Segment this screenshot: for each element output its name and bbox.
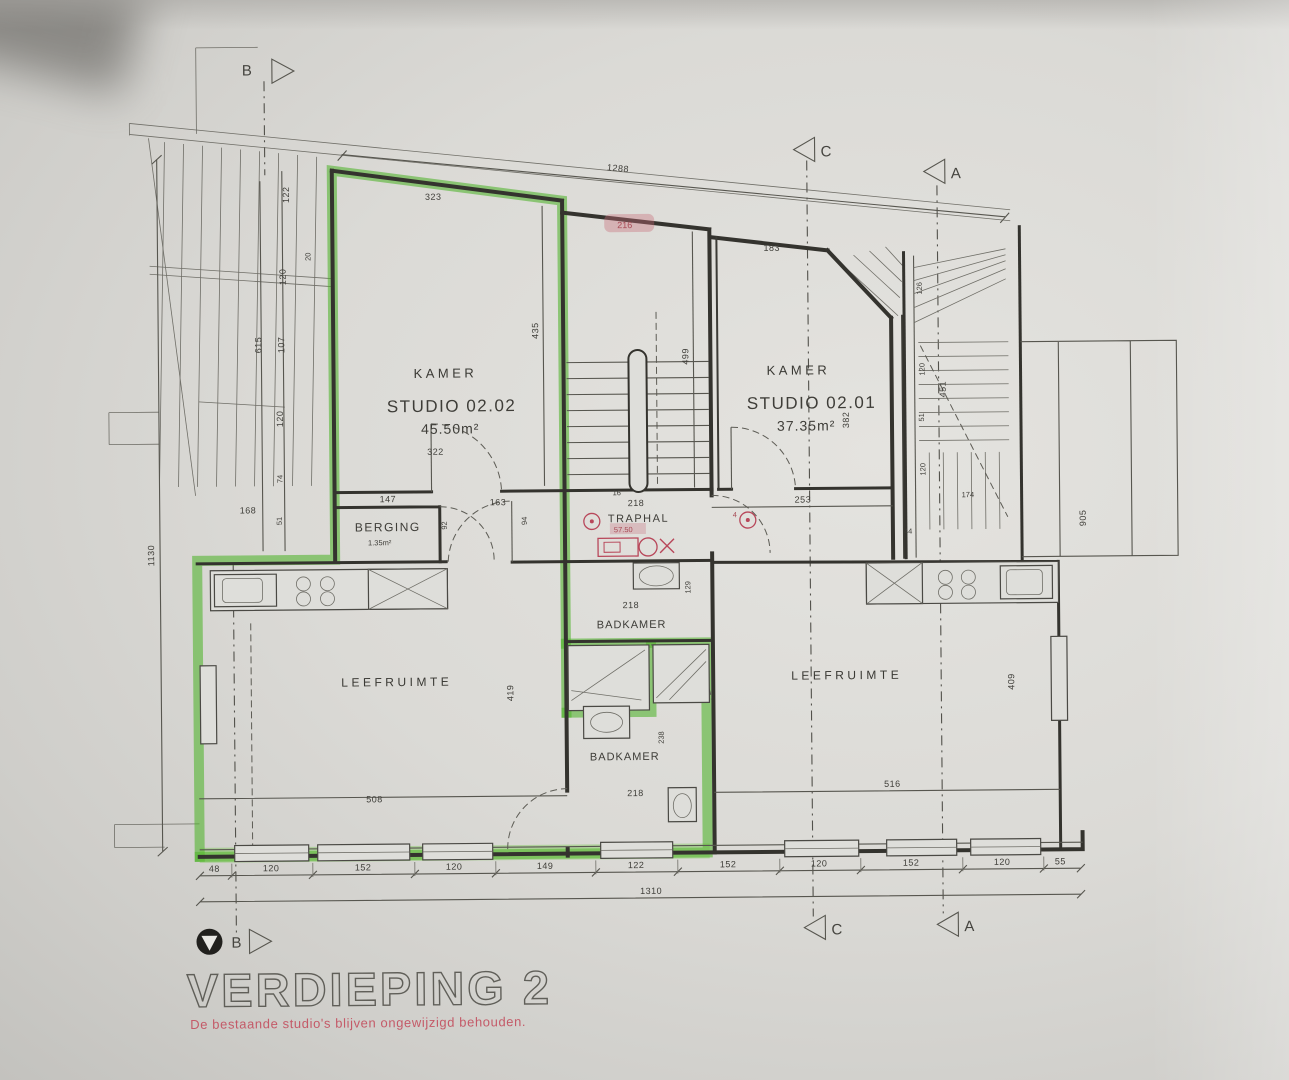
dim-k2-top: 323 bbox=[425, 192, 442, 202]
room-area-0201: 37.35m² bbox=[777, 417, 835, 434]
dim-rs-120b: 120 bbox=[918, 463, 927, 476]
red-annotations: 216 57.50 4 bbox=[581, 213, 756, 556]
kitchen-right bbox=[866, 561, 1058, 604]
dim-rs-174: 174 bbox=[962, 490, 975, 499]
dim-k2-bottom: 322 bbox=[427, 447, 444, 457]
dim-berging-right: 92 bbox=[440, 521, 449, 529]
dim-left-615: 615 bbox=[253, 337, 263, 354]
room-studio-0201: STUDIO 02.01 bbox=[747, 393, 877, 413]
dim-hall-94: 94 bbox=[520, 517, 529, 525]
roof-hatch-right bbox=[837, 247, 903, 317]
dim-bottom-5: 122 bbox=[628, 860, 645, 870]
central-staircase bbox=[566, 349, 709, 492]
marker-c-bottom: C bbox=[831, 921, 843, 938]
dim-bk2-218: 218 bbox=[627, 788, 644, 798]
dim-bottom-8: 152 bbox=[903, 858, 920, 868]
dim-left-1130: 1130 bbox=[146, 545, 156, 566]
dim-bottom-7: 120 bbox=[811, 858, 828, 868]
dim-bottom-6: 152 bbox=[720, 859, 737, 869]
marker-a-bottom: A bbox=[964, 918, 975, 935]
dim-berging-top: 147 bbox=[380, 494, 397, 504]
dim-rs-905: 905 bbox=[1078, 510, 1088, 527]
dim-lrr-516: 516 bbox=[884, 779, 901, 789]
room-leefruimte-left: LEEFRUIMTE bbox=[341, 675, 452, 690]
dim-k1-top: 183 bbox=[763, 243, 780, 253]
dim-k2-right: 435 bbox=[530, 322, 540, 339]
dim-stair-218: 218 bbox=[628, 498, 645, 508]
dim-k1-right: 382 bbox=[841, 412, 851, 429]
marker-c-top: C bbox=[821, 143, 833, 160]
dim-left-122: 122 bbox=[281, 187, 291, 204]
dim-left-120b: 120 bbox=[275, 411, 285, 428]
room-berging: BERGING bbox=[355, 520, 421, 535]
right-staircase bbox=[913, 249, 1009, 530]
dim-bottom-9: 120 bbox=[994, 857, 1011, 867]
window-notch-right bbox=[1051, 636, 1068, 720]
dim-hall-16: 16 bbox=[613, 488, 621, 497]
dim-k1-hall: 253 bbox=[795, 495, 812, 505]
dim-bottom-3: 120 bbox=[446, 862, 463, 872]
floorplan-photo: 216 57.50 4 bbox=[0, 0, 1289, 1080]
dim-lrl-419: 419 bbox=[505, 685, 515, 702]
room-traphal: TRAPHAL bbox=[608, 513, 669, 526]
dim-bottom-total: 1310 bbox=[640, 886, 662, 896]
section-markers: B C A B C A bbox=[189, 53, 976, 955]
dim-bottom-10: 55 bbox=[1055, 856, 1066, 866]
dim-bk1-218: 218 bbox=[623, 600, 640, 610]
dim-top-total: 1288 bbox=[607, 162, 630, 174]
dim-left-107: 107 bbox=[276, 337, 286, 354]
dim-bottom-4: 149 bbox=[537, 861, 554, 871]
dim-rs-44: 44 bbox=[904, 527, 912, 536]
room-badkamer-top: BADKAMER bbox=[597, 619, 667, 632]
roof-hatch-left bbox=[157, 141, 320, 487]
doors bbox=[431, 421, 799, 850]
dim-bottom-1: 120 bbox=[263, 863, 280, 873]
dim-left-168: 168 bbox=[240, 505, 257, 515]
dim-rs-126: 126 bbox=[915, 282, 924, 295]
room-badkamer-bottom: BADKAMER bbox=[590, 751, 660, 764]
window-notch-left bbox=[200, 666, 217, 744]
dim-left-74: 74 bbox=[275, 475, 284, 483]
dim-hall-163: 163 bbox=[490, 497, 507, 507]
room-leefruimte-right: LEEFRUIMTE bbox=[791, 668, 902, 683]
dim-bottom-0: 48 bbox=[209, 864, 220, 874]
bathroom-top-fixtures bbox=[633, 563, 679, 589]
bottom-windows bbox=[235, 839, 1041, 862]
room-kamer-left: KAMER bbox=[413, 365, 477, 381]
red-stamp: 216 bbox=[617, 220, 632, 230]
walls bbox=[194, 163, 1181, 859]
traphal-area-note: 57.50 bbox=[614, 525, 633, 534]
dim-rs-120a: 120 bbox=[917, 363, 926, 376]
page-subtitle: De bestaande studio's blijven ongewijzig… bbox=[190, 1014, 526, 1032]
dim-rs-451: 451 bbox=[938, 381, 948, 398]
floorplan-drawing: 216 57.50 4 bbox=[0, 0, 1289, 1080]
dim-bk1-129: 129 bbox=[683, 581, 692, 594]
dim-bk2-238: 238 bbox=[657, 731, 666, 744]
room-berging-area: 1.35m² bbox=[368, 538, 392, 547]
room-studio-0202: STUDIO 02.02 bbox=[387, 396, 517, 416]
page-title: VERDIEPING 2 bbox=[187, 961, 553, 1017]
dim-rs-51: 51 bbox=[917, 413, 926, 421]
dim-lrr-409: 409 bbox=[1006, 673, 1016, 690]
marker-a-top: A bbox=[951, 165, 962, 182]
detector-count: 4 bbox=[733, 510, 737, 519]
room-kamer-right: KAMER bbox=[766, 362, 830, 378]
title-block: VERDIEPING 2 De bestaande studio's blijv… bbox=[187, 961, 553, 1032]
marker-b-bottom: B bbox=[231, 934, 242, 951]
dim-lrl-508: 508 bbox=[366, 794, 383, 804]
marker-b-top: B bbox=[242, 62, 253, 79]
dim-bottom-2: 152 bbox=[355, 862, 372, 872]
kitchen-left bbox=[210, 569, 447, 611]
dim-left-51: 51 bbox=[275, 517, 284, 525]
dim-stair-499: 499 bbox=[680, 348, 690, 365]
dim-left-20: 20 bbox=[303, 253, 312, 261]
room-area-0202: 45.50m² bbox=[421, 420, 479, 437]
dim-left-120a: 120 bbox=[278, 269, 288, 286]
